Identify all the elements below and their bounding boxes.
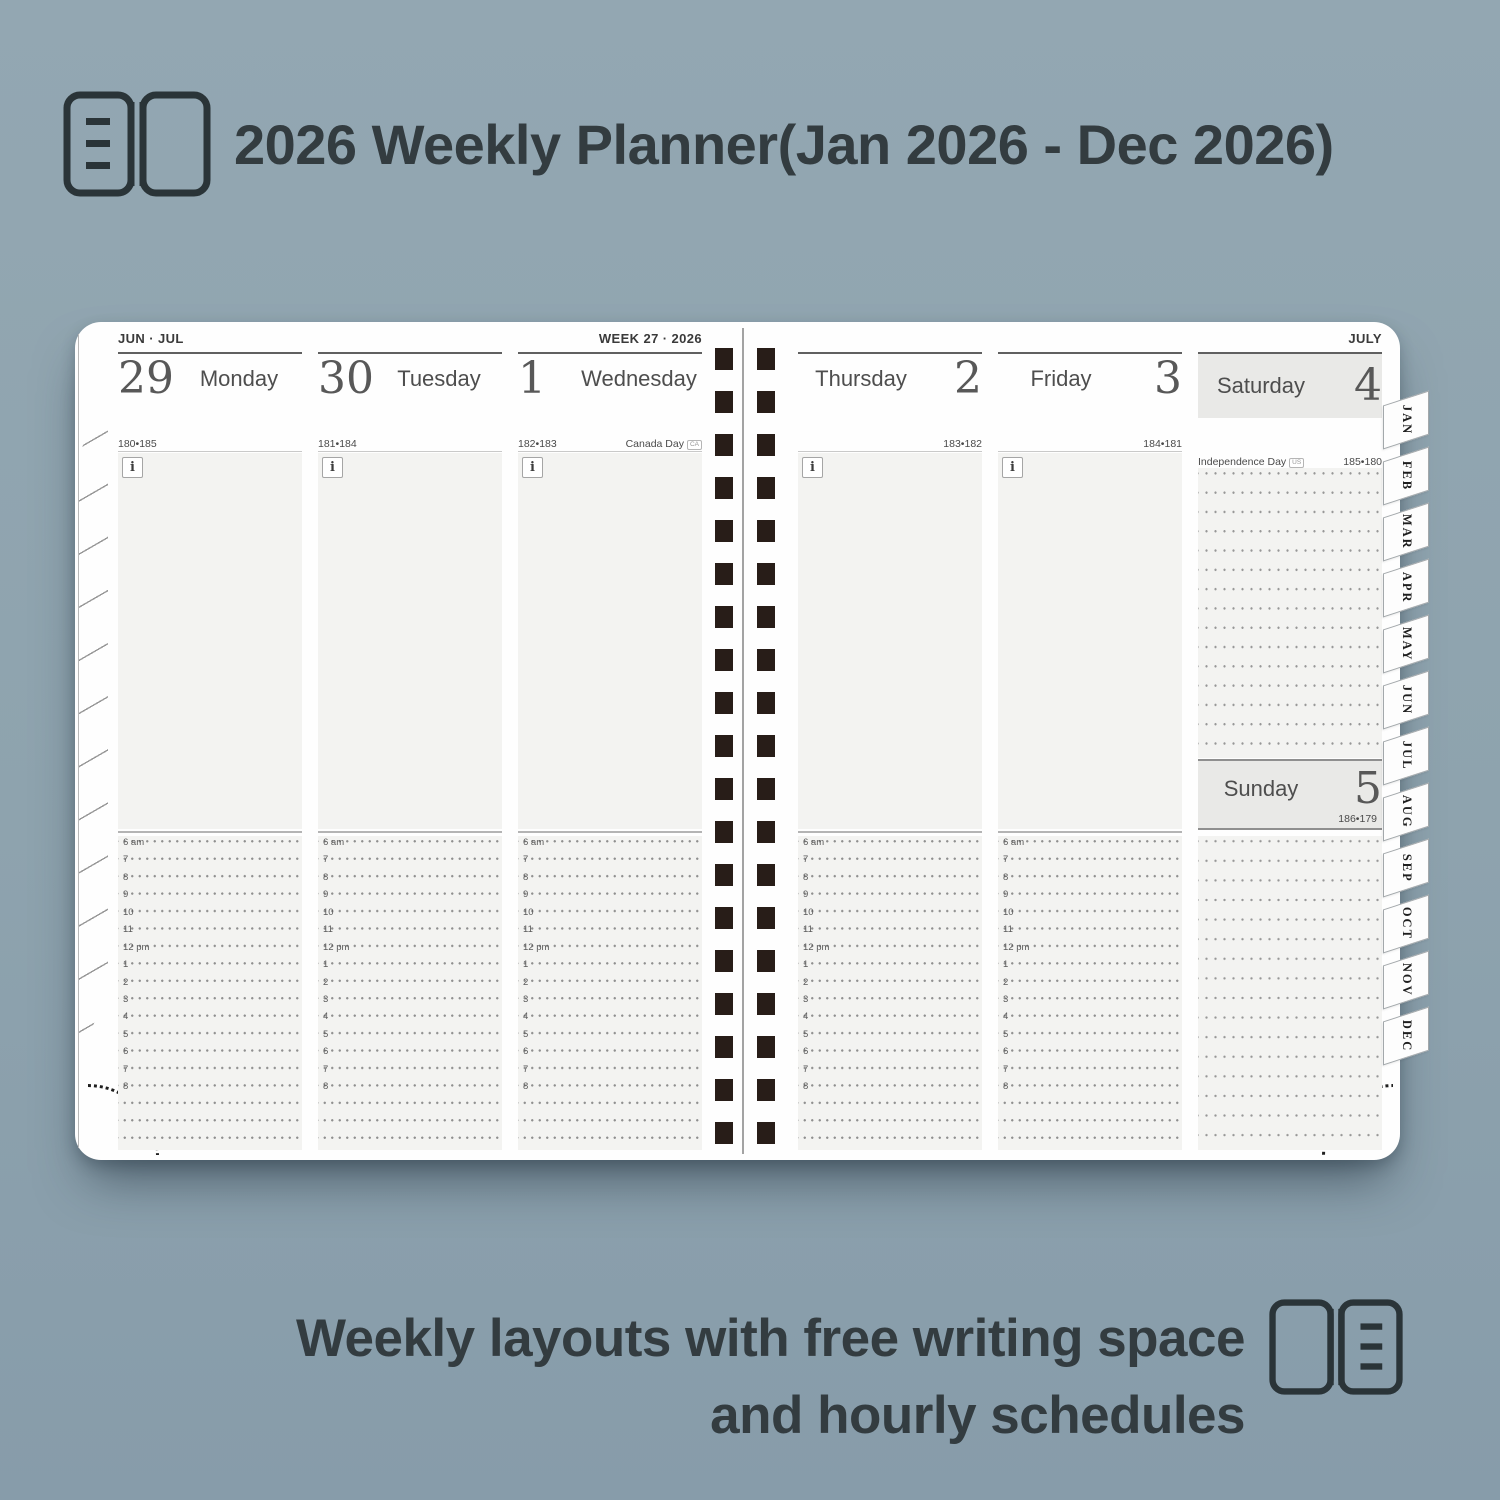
free-writing-area: i — [518, 453, 702, 829]
free-writing-area: i — [998, 453, 1182, 829]
hour-label: 6 — [803, 1046, 808, 1057]
product-header: 2026 Weekly Planner(Jan 2026 - Dec 2026) — [62, 90, 1334, 198]
hour-label: 7 — [523, 1064, 528, 1075]
page-gutter-line — [742, 328, 744, 1154]
hour-label: 3 — [803, 994, 808, 1005]
hour-label: 8 — [1003, 1081, 1008, 1092]
day-header: 30 Tuesday — [318, 352, 502, 402]
hour-label: 6 am — [1003, 837, 1024, 848]
hourly-schedule: 6 am789101112 pm12345678 — [318, 836, 502, 1150]
hour-label: 5 — [803, 1029, 808, 1040]
hour-label: 9 — [1003, 889, 1008, 900]
product-title: 2026 Weekly Planner(Jan 2026 - Dec 2026) — [234, 112, 1334, 177]
hour-label: 7 — [803, 854, 808, 865]
hour-label: 6 am — [123, 837, 144, 848]
hour-row: 8 — [318, 871, 502, 888]
day-header: 29 Monday — [118, 352, 302, 402]
hour-row: 8 — [118, 1080, 302, 1097]
hour-row: 6 am — [118, 836, 302, 853]
day-name: Tuesday — [376, 366, 502, 392]
hour-row: 10 — [518, 906, 702, 923]
hour-label: 8 — [523, 1081, 528, 1092]
hour-row: 8 — [318, 1080, 502, 1097]
hour-row: 7 — [118, 853, 302, 870]
month-tab: MAY — [1383, 615, 1429, 674]
hour-label: 1 — [323, 959, 328, 970]
hour-label: 3 — [523, 994, 528, 1005]
sunday-notes-area — [1198, 836, 1382, 1150]
planner-spread: JUN · JUL WEEK 27 · 2026 JULY 29 Monday … — [75, 322, 1400, 1160]
hour-label: 11 — [523, 924, 533, 935]
month-tab-label: AUG — [1399, 795, 1414, 829]
hour-label: 4 — [803, 1011, 808, 1022]
hour-row: 7 — [118, 1063, 302, 1080]
month-tab-label: NOV — [1399, 963, 1414, 997]
hour-row: 10 — [798, 906, 982, 923]
hour-row: 9 — [118, 888, 302, 905]
month-tab: JUN — [1383, 671, 1429, 730]
free-writing-area: i — [118, 453, 302, 829]
hour-row: 8 — [518, 1080, 702, 1097]
hour-row: 7 — [798, 853, 982, 870]
hour-label: 12 pm — [523, 942, 549, 953]
day-number: 5 — [1324, 767, 1382, 811]
day-of-year-count: 182•183 — [518, 438, 557, 450]
hour-row: 8 — [798, 1080, 982, 1097]
hour-row: 1 — [318, 958, 502, 975]
hour-label: 6 — [1003, 1046, 1008, 1057]
month-tab-label: APR — [1399, 572, 1414, 604]
holiday-label: Independence DayUS — [1198, 456, 1304, 468]
hour-row: 7 — [318, 1063, 502, 1080]
info-icon: i — [522, 457, 543, 478]
hour-row: 7 — [518, 853, 702, 870]
hour-row: 11 — [318, 923, 502, 940]
feature-caption-line1: Weekly layouts with free writing space — [0, 1300, 1245, 1377]
hour-row: 11 — [118, 923, 302, 940]
saturday-header: Saturday 4 — [1198, 352, 1382, 418]
hour-label: 12 pm — [1003, 942, 1029, 953]
day-of-year-row: 180•185 — [118, 430, 302, 452]
hour-label: 1 — [1003, 959, 1008, 970]
hour-row: 5 — [998, 1028, 1182, 1045]
sunday-header: Sunday 5 186•179 — [1198, 759, 1382, 830]
month-tab: APR — [1383, 559, 1429, 618]
hour-label: 10 — [123, 907, 134, 918]
day-number: 30 — [318, 357, 376, 401]
hour-label: 9 — [123, 889, 128, 900]
free-writing-area: i — [318, 453, 502, 829]
hour-row: 4 — [798, 1010, 982, 1027]
hourly-schedule: 6 am789101112 pm12345678 — [118, 836, 302, 1150]
hour-label: 2 — [1003, 977, 1008, 988]
hour-row: 3 — [318, 993, 502, 1010]
hour-label: 5 — [523, 1029, 528, 1040]
hour-row: 7 — [318, 853, 502, 870]
hour-label: 8 — [323, 1081, 328, 1092]
hour-row: 7 — [998, 1063, 1182, 1080]
feature-caption-line2: and hourly schedules — [0, 1377, 1245, 1454]
holiday-flag-badge: US — [1289, 458, 1304, 468]
section-divider — [998, 831, 1182, 833]
hour-row: 6 am — [798, 836, 982, 853]
page-stack-edge-line — [78, 334, 79, 1148]
hour-row: 11 — [798, 923, 982, 940]
day-of-year-count: 184•181 — [1143, 438, 1182, 450]
hour-row: 3 — [998, 993, 1182, 1010]
day-number: 29 — [118, 357, 176, 401]
month-tab-label: SEP — [1399, 854, 1414, 883]
hour-label: 12 pm — [123, 942, 149, 953]
day-name: Monday — [176, 366, 302, 392]
info-icon: i — [122, 457, 143, 478]
hour-row: 6 am — [318, 836, 502, 853]
hour-label: 8 — [803, 1081, 808, 1092]
hour-row: 1 — [518, 958, 702, 975]
month-tab-label: DEC — [1399, 1020, 1414, 1052]
info-icon: i — [1002, 457, 1023, 478]
hour-label: 6 am — [323, 837, 344, 848]
section-divider — [318, 831, 502, 833]
hour-row: 8 — [118, 871, 302, 888]
hour-label: 10 — [523, 907, 534, 918]
hour-row: 2 — [118, 976, 302, 993]
hour-row: 12 pm — [318, 941, 502, 958]
hour-row: 5 — [518, 1028, 702, 1045]
month-tab: DEC — [1383, 1007, 1429, 1066]
month-tab-label: MAY — [1399, 627, 1414, 662]
holiday-label: Canada DayCA — [626, 438, 702, 450]
day-name: Friday — [998, 366, 1124, 392]
hour-row: 6 am — [518, 836, 702, 853]
hour-label: 8 — [123, 1081, 128, 1092]
page-stack-hatch — [79, 394, 108, 1054]
hour-row: 7 — [518, 1063, 702, 1080]
hour-row: 3 — [798, 993, 982, 1010]
day-column-wednesday: 1 Wednesday 182•183 Canada DayCA i 6 am7… — [518, 352, 702, 1120]
day-column-monday: 29 Monday 180•185 i 6 am789101112 pm1234… — [118, 352, 302, 1120]
hour-label: 8 — [123, 872, 128, 883]
hour-row: 11 — [518, 923, 702, 940]
saturday-notes-area — [1198, 468, 1382, 758]
month-tab: NOV — [1383, 951, 1429, 1010]
hour-row: 8 — [998, 871, 1182, 888]
hour-row: 3 — [118, 993, 302, 1010]
hour-label: 4 — [523, 1011, 528, 1022]
hour-label: 8 — [323, 872, 328, 883]
day-name: Saturday — [1198, 373, 1324, 399]
hour-label: 7 — [123, 854, 128, 865]
feature-caption: Weekly layouts with free writing space a… — [0, 1300, 1245, 1455]
day-column-weekend: Saturday 4 Independence DayUS 185•180 Su… — [1198, 352, 1382, 1120]
day-of-year-row: 181•184 — [318, 430, 502, 452]
hour-row: 5 — [798, 1028, 982, 1045]
hour-label: 8 — [803, 872, 808, 883]
day-name: Sunday — [1198, 776, 1324, 802]
month-tab: SEP — [1383, 839, 1429, 898]
hour-row: 4 — [998, 1010, 1182, 1027]
hour-label: 7 — [323, 854, 328, 865]
day-column-friday: Friday 3 184•181 i 6 am789101112 pm12345… — [998, 352, 1182, 1120]
hour-label: 10 — [323, 907, 334, 918]
day-name: Thursday — [798, 366, 924, 392]
hour-row: 10 — [118, 906, 302, 923]
section-divider — [118, 831, 302, 833]
day-of-year-count: 181•184 — [318, 438, 357, 450]
month-tab-label: OCT — [1399, 907, 1414, 940]
hour-label: 11 — [803, 924, 813, 935]
hour-label: 12 pm — [323, 942, 349, 953]
month-tab-label: JAN — [1399, 405, 1414, 435]
hour-label: 8 — [523, 872, 528, 883]
day-of-year-row: Independence DayUS 185•180 — [1198, 448, 1382, 470]
hour-label: 7 — [123, 1064, 128, 1075]
day-of-year-row: 184•181 — [998, 430, 1182, 452]
hour-label: 6 — [123, 1046, 128, 1057]
hour-row: 4 — [318, 1010, 502, 1027]
hour-row: 2 — [998, 976, 1182, 993]
info-icon: i — [802, 457, 823, 478]
free-writing-area: i — [798, 453, 982, 829]
month-tab-label: JUL — [1399, 741, 1414, 771]
hour-label: 5 — [323, 1029, 328, 1040]
hour-row: 6 — [998, 1045, 1182, 1062]
hour-label: 5 — [123, 1029, 128, 1040]
hour-label: 9 — [523, 889, 528, 900]
day-header: Thursday 2 — [798, 352, 982, 402]
hour-label: 11 — [123, 924, 133, 935]
hourly-schedule: 6 am789101112 pm12345678 — [798, 836, 982, 1150]
hour-row: 1 — [118, 958, 302, 975]
hour-row: 5 — [318, 1028, 502, 1045]
hour-label: 7 — [1003, 1064, 1008, 1075]
month-tab: OCT — [1383, 895, 1429, 954]
day-number: 4 — [1324, 364, 1382, 408]
hour-row: 12 pm — [998, 941, 1182, 958]
left-page-month-label: JUN · JUL — [118, 331, 184, 346]
hour-label: 6 — [323, 1046, 328, 1057]
hourly-schedule: 6 am789101112 pm12345678 — [998, 836, 1182, 1150]
month-tab: JUL — [1383, 727, 1429, 786]
hour-label: 11 — [323, 924, 333, 935]
holiday-flag-badge: CA — [687, 440, 702, 450]
hour-label: 2 — [803, 977, 808, 988]
hour-label: 3 — [323, 994, 328, 1005]
month-tab-strip: JAN FEB MAR APR MAY JUN JUL AUG SEP OCT … — [1383, 398, 1429, 1070]
hour-label: 7 — [323, 1064, 328, 1075]
hour-row: 12 pm — [798, 941, 982, 958]
hour-label: 7 — [1003, 854, 1008, 865]
hour-row: 6 — [118, 1045, 302, 1062]
hour-label: 5 — [1003, 1029, 1008, 1040]
hour-row: 6 — [518, 1045, 702, 1062]
hour-row: 9 — [518, 888, 702, 905]
day-of-year-count: 185•180 — [1343, 456, 1382, 468]
spiral-binding-right — [757, 348, 775, 1144]
month-tab: FEB — [1383, 447, 1429, 506]
hour-label: 12 pm — [803, 942, 829, 953]
planner-book-icon-mirrored — [1268, 1295, 1404, 1399]
hour-row: 7 — [998, 853, 1182, 870]
week-number-label: WEEK 27 · 2026 — [518, 331, 702, 346]
hour-row: 5 — [118, 1028, 302, 1045]
month-tab: MAR — [1383, 503, 1429, 562]
hour-label: 6 am — [803, 837, 824, 848]
hour-row: 9 — [318, 888, 502, 905]
day-number: 3 — [1124, 357, 1182, 401]
day-number: 1 — [518, 357, 576, 401]
hour-label: 1 — [803, 959, 808, 970]
day-of-year-count: 180•185 — [118, 438, 157, 450]
hour-label: 3 — [123, 994, 128, 1005]
info-icon: i — [322, 457, 343, 478]
hour-row: 2 — [798, 976, 982, 993]
hour-label: 10 — [1003, 907, 1014, 918]
hour-row: 8 — [998, 1080, 1182, 1097]
planner-book-icon — [62, 90, 212, 198]
hour-row: 8 — [798, 871, 982, 888]
hour-row: 12 pm — [518, 941, 702, 958]
month-tab-label: MAR — [1399, 514, 1414, 550]
hour-label: 2 — [123, 977, 128, 988]
hour-row: 12 pm — [118, 941, 302, 958]
hour-row: 1 — [798, 958, 982, 975]
hour-label: 2 — [323, 977, 328, 988]
hour-row: 11 — [998, 923, 1182, 940]
month-tab: JAN — [1383, 391, 1429, 450]
spiral-binding-left — [715, 348, 733, 1144]
day-number: 2 — [924, 357, 982, 401]
hour-label: 8 — [1003, 872, 1008, 883]
day-of-year-count: 186•179 — [1338, 813, 1377, 825]
hour-row: 10 — [998, 906, 1182, 923]
day-header: 1 Wednesday — [518, 352, 702, 402]
hour-row: 3 — [518, 993, 702, 1010]
hour-row: 6 — [318, 1045, 502, 1062]
day-of-year-row: 182•183 Canada DayCA — [518, 430, 702, 452]
day-column-thursday: Thursday 2 183•182 i 6 am789101112 pm123… — [798, 352, 982, 1120]
hour-label: 10 — [803, 907, 814, 918]
hour-label: 2 — [523, 977, 528, 988]
hour-label: 11 — [1003, 924, 1013, 935]
day-name: Wednesday — [576, 366, 702, 392]
hour-label: 4 — [323, 1011, 328, 1022]
day-of-year-count: 183•182 — [943, 438, 982, 450]
hour-label: 1 — [523, 959, 528, 970]
hour-row: 6 — [798, 1045, 982, 1062]
hour-row: 1 — [998, 958, 1182, 975]
day-header: Friday 3 — [998, 352, 1182, 402]
hour-row: 2 — [318, 976, 502, 993]
hour-row: 8 — [518, 871, 702, 888]
hour-label: 4 — [1003, 1011, 1008, 1022]
month-tab-label: FEB — [1399, 461, 1414, 491]
hour-label: 7 — [523, 854, 528, 865]
month-tab: AUG — [1383, 783, 1429, 842]
day-column-tuesday: 30 Tuesday 181•184 i 6 am789101112 pm123… — [318, 352, 502, 1120]
hour-row: 7 — [798, 1063, 982, 1080]
section-divider — [518, 831, 702, 833]
hourly-schedule: 6 am789101112 pm12345678 — [518, 836, 702, 1150]
hour-label: 9 — [323, 889, 328, 900]
hour-label: 4 — [123, 1011, 128, 1022]
hour-row: 9 — [998, 888, 1182, 905]
hour-row: 2 — [518, 976, 702, 993]
hour-row: 6 am — [998, 836, 1182, 853]
hour-row: 9 — [798, 888, 982, 905]
hour-row: 4 — [118, 1010, 302, 1027]
hour-row: 4 — [518, 1010, 702, 1027]
hour-row: 10 — [318, 906, 502, 923]
right-page-month-label: JULY — [1198, 331, 1382, 346]
hour-label: 7 — [803, 1064, 808, 1075]
hour-label: 3 — [1003, 994, 1008, 1005]
day-of-year-row: 183•182 — [798, 430, 982, 452]
month-tab-label: JUN — [1399, 685, 1414, 715]
hour-label: 6 — [523, 1046, 528, 1057]
section-divider — [798, 831, 982, 833]
hour-label: 6 am — [523, 837, 544, 848]
hour-label: 1 — [123, 959, 128, 970]
hour-label: 9 — [803, 889, 808, 900]
